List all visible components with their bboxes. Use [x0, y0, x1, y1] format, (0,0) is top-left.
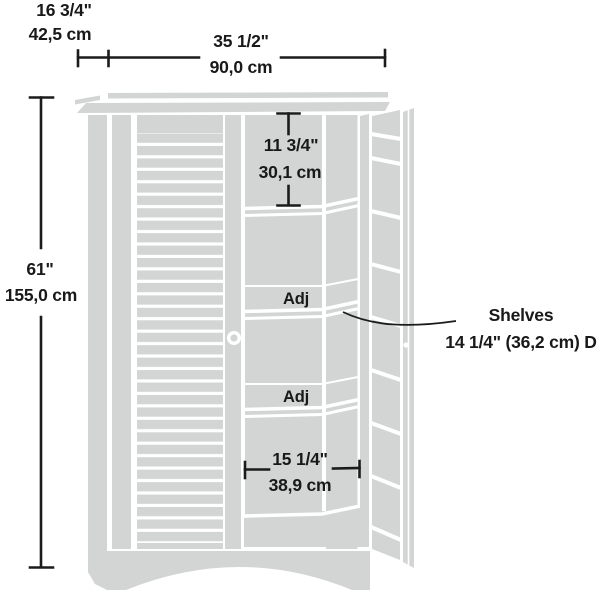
top-opening-cm-label: 30,1 cm [259, 163, 322, 181]
bottom-opening-cm-label: 38,9 cm [269, 476, 332, 494]
open-door-panels [372, 110, 400, 560]
width-cm-label: 90,0 cm [210, 58, 273, 76]
adjustable-shelf-1-label: Adj [283, 291, 309, 308]
crown-molding [75, 92, 390, 113]
height-cm-label: 155,0 cm [5, 286, 77, 304]
door-top-rail [137, 115, 223, 133]
adjustable-shelf-2-label: Adj [283, 389, 309, 406]
louvered-door [112, 115, 241, 549]
shelves-callout-title: Shelves [489, 306, 554, 324]
width-inches-label: 35 1/2" [213, 32, 269, 50]
bottom-opening-inches-label: 15 1/4" [272, 450, 328, 468]
open-door [360, 108, 414, 568]
door-left-stile [112, 115, 131, 549]
depth-cm-label: 42,5 cm [29, 25, 92, 43]
shelves-callout-detail: 14 1/4" (36,2 cm) D [445, 333, 596, 351]
open-door-left-stile [360, 114, 369, 547]
louver-slats [137, 133, 223, 543]
cabinet-left-side [88, 115, 107, 590]
depth-inches-label: 16 3/4" [36, 1, 92, 19]
open-door-knob [403, 342, 408, 347]
door-bottom-rail [137, 543, 223, 549]
height-dimension-line [30, 98, 53, 568]
height-inches-label: 61" [26, 260, 53, 278]
dimension-diagram: 16 3/4" 42,5 cm 35 1/2" 90,0 cm 61" 155,… [0, 0, 600, 600]
base-rail [107, 551, 370, 590]
top-opening-inches-label: 11 3/4" [264, 136, 319, 154]
